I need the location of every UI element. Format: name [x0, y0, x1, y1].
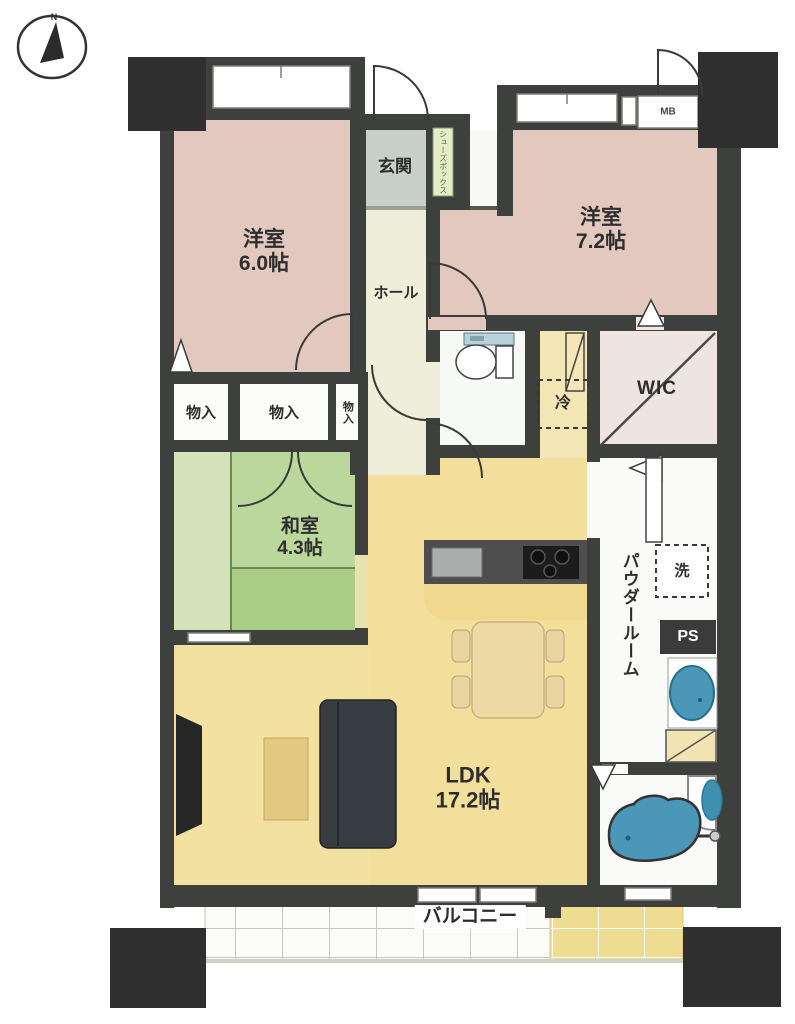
- powder-room-label: パウダールーム: [619, 552, 639, 678]
- storage2-label: 物入: [269, 404, 299, 421]
- room-label-ldk: LDK 17.2帖: [436, 763, 501, 814]
- tv-icon: [176, 714, 202, 836]
- basin-icon: [670, 666, 714, 720]
- western2-name: 洋室: [576, 206, 626, 230]
- wic-label: WIC: [637, 378, 677, 400]
- floorplan-drawing: [0, 0, 795, 1024]
- western1-size: 6.0帖: [239, 252, 289, 276]
- ldk-size: 17.2帖: [436, 788, 501, 813]
- storage3-label: 物入: [341, 401, 354, 425]
- japanese-size: 4.3帖: [277, 538, 322, 560]
- ldk-name: LDK: [436, 763, 501, 788]
- compass-icon: [18, 16, 86, 78]
- kitchen-counter: [424, 540, 587, 620]
- meter-box-label: MB: [660, 106, 676, 118]
- shoe-box-label: シューズボックス: [438, 130, 447, 194]
- washer-label: 洗: [674, 562, 689, 579]
- sofa-icon: [320, 700, 396, 848]
- toilet-icon: [456, 333, 514, 379]
- japanese-name: 和室: [277, 516, 322, 538]
- western2-size: 7.2帖: [576, 230, 626, 254]
- pipe-space-label: PS: [677, 628, 698, 646]
- entrance-label: 玄関: [378, 157, 412, 177]
- floorplan-page: N 洋室 6.0帖 洋室 7.2帖 和室 4.3帖 LDK 17.2帖 玄関 ホ…: [0, 0, 795, 1024]
- balcony-label: バルコニー: [415, 905, 526, 929]
- western1-name: 洋室: [239, 228, 289, 252]
- storage1-label: 物入: [186, 404, 216, 421]
- room-label-western2: 洋室 7.2帖: [576, 206, 626, 254]
- coffee-table: [264, 738, 308, 820]
- hall-label: ホール: [373, 284, 418, 301]
- refrigerator-label: 冷: [555, 395, 571, 413]
- room-label-japanese: 和室 4.3帖: [277, 516, 322, 560]
- compass-north-label: N: [51, 12, 58, 22]
- room-label-western1: 洋室 6.0帖: [239, 228, 289, 276]
